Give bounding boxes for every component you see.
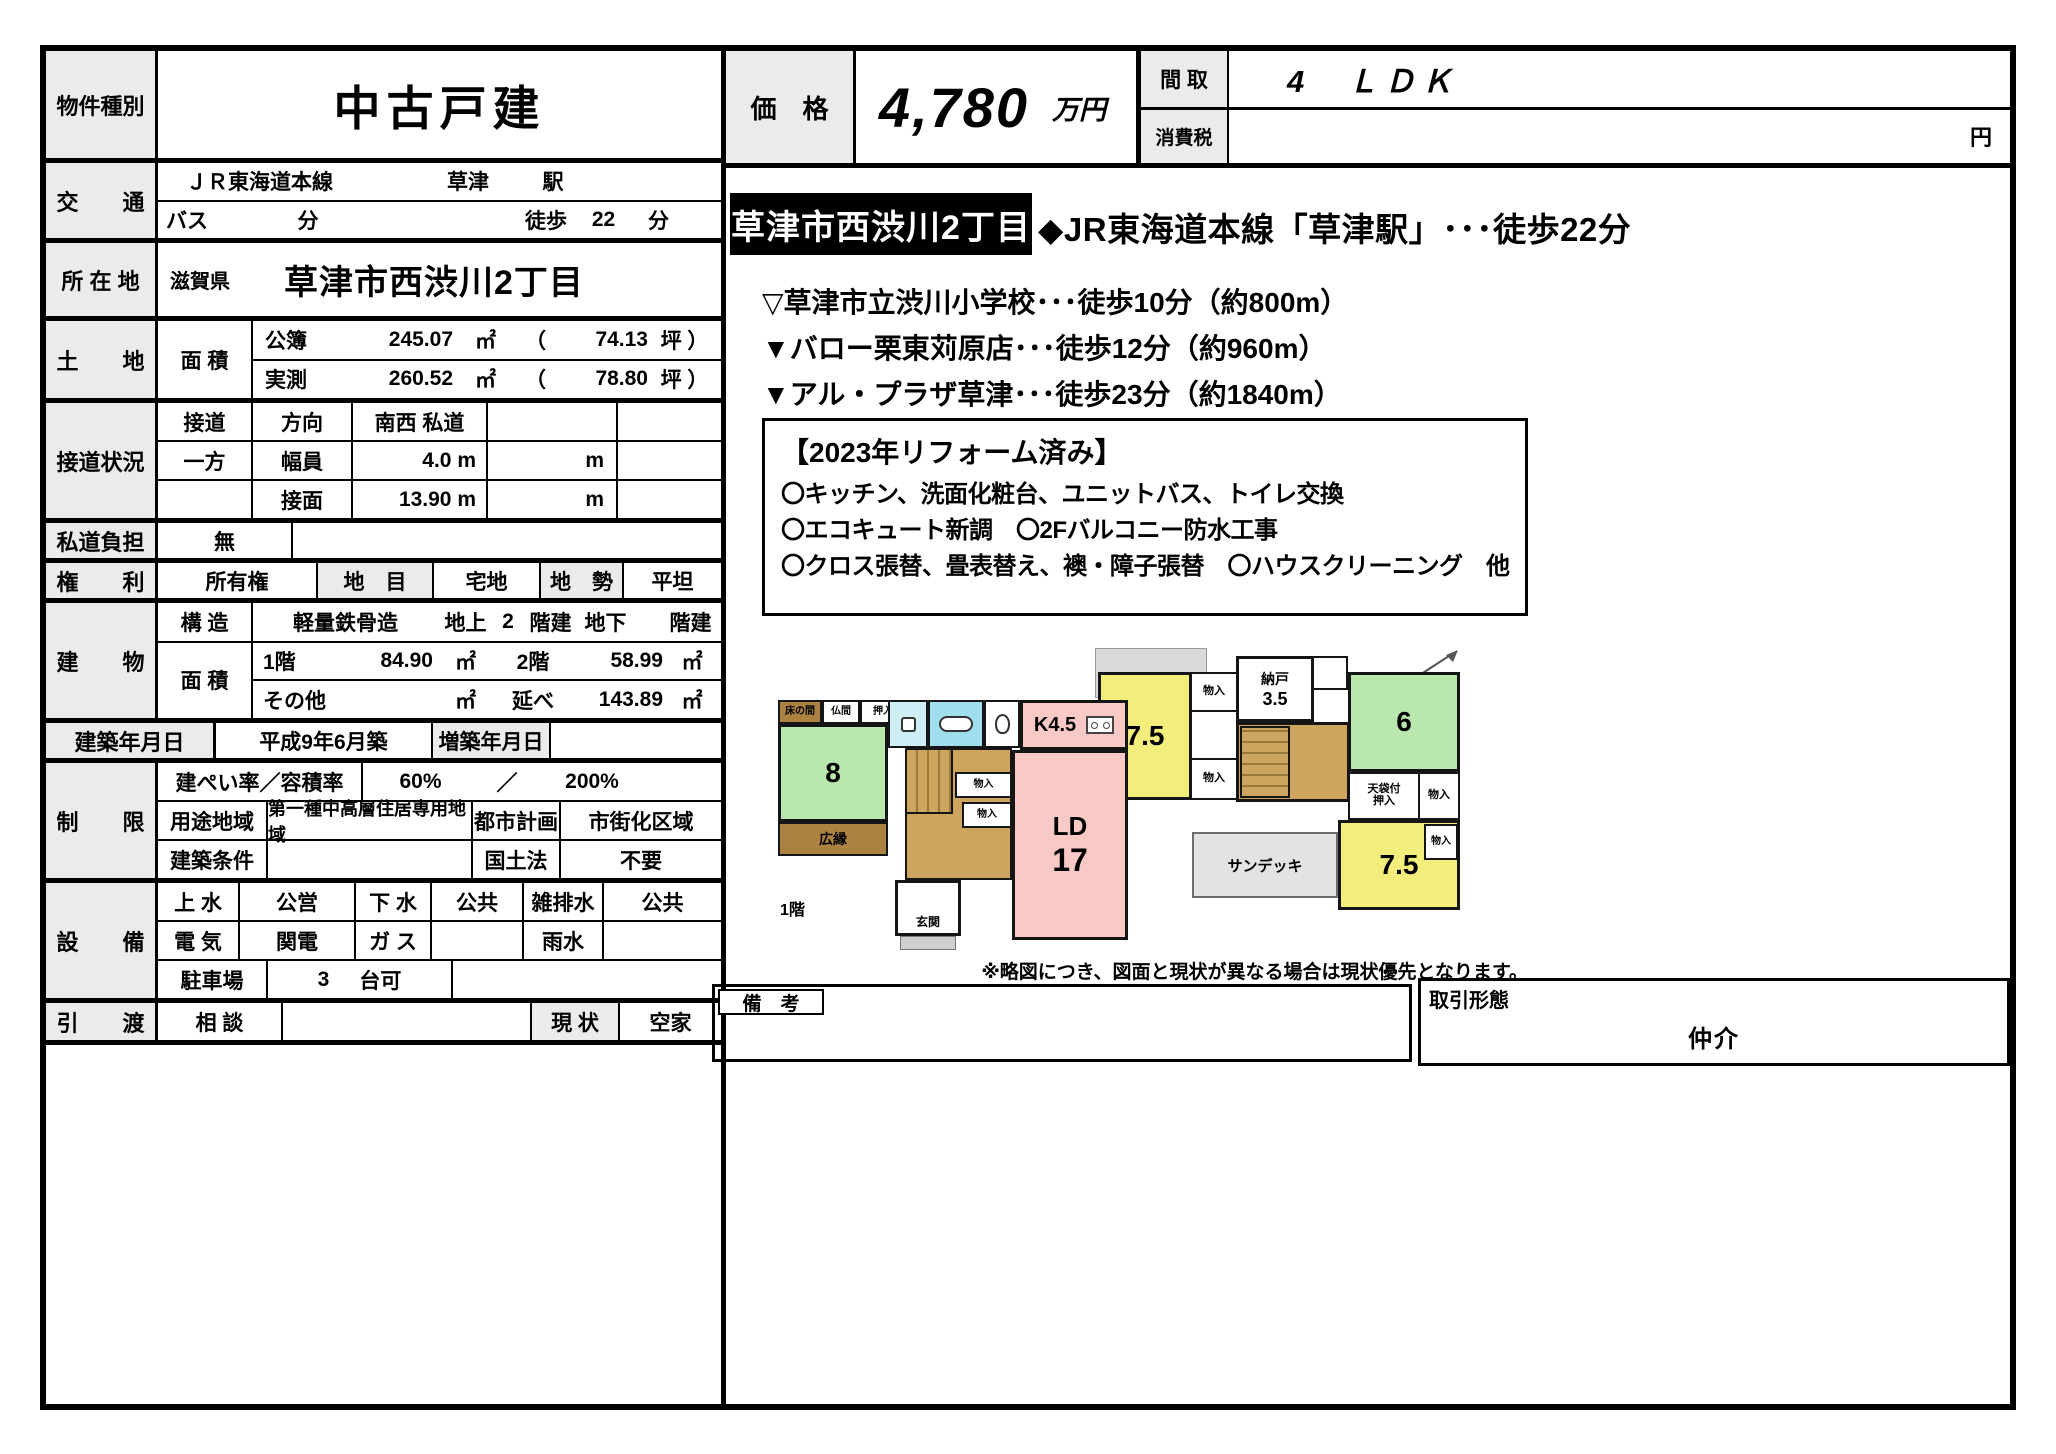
transaction-type-box: 取引形態 仲介 (1418, 978, 2010, 1066)
land-category-value: 宅地 (434, 563, 539, 598)
staircase-1f (905, 748, 953, 814)
toilet-1f (984, 700, 1020, 748)
flyer-page: 物件種別 中古戸建 交 通 ＪＲ東海道本線 草津 駅 バス 分 (0, 0, 2056, 1454)
closet-1f-a: 物入 (955, 772, 1012, 798)
spacer (578, 163, 721, 200)
tenbukuro-line-2: 押入 (1373, 796, 1395, 808)
spacer (686, 202, 721, 239)
parking-value-cell: 3 台可 (268, 961, 453, 998)
address-badge: 草津市西渋川2丁目 (730, 193, 1032, 255)
land-measured-row: 実測 260.52 ㎡ （ 78.80 坪 ） (253, 359, 721, 399)
walk-value: 22 (576, 202, 631, 239)
direction-value-2 (488, 403, 618, 440)
property-type-label: 物件種別 (46, 51, 158, 158)
structure-label: 構 造 (158, 603, 253, 641)
measured-value: 260.52 (323, 361, 453, 399)
bus-unit: 分 (288, 202, 328, 239)
direction-value: 南西 私道 (353, 403, 488, 440)
price-value-cell: 4,780 万円 (856, 51, 1141, 163)
row-land: 土 地 面 積 公簿 245.07 ㎡ （ 74.13 坪 ） 実測 260.5… (46, 321, 721, 403)
parking-unit: 台可 (359, 965, 401, 995)
land-label: 土 地 (46, 321, 158, 398)
parking-row: 駐車場 3 台可 (158, 959, 721, 998)
reform-title: 【2023年リフォーム済み】 (781, 431, 1509, 471)
drain-value: 公共 (604, 883, 721, 920)
room-2f-6: 6 (1348, 672, 1460, 772)
width-unit-2: m (488, 442, 618, 479)
registered-label: 公簿 (253, 321, 323, 359)
rail-line: ＪＲ東海道本線 (158, 163, 408, 200)
tax-label: 消費税 (1141, 110, 1229, 163)
condition-value (268, 841, 473, 878)
road-label: 接道状況 (46, 403, 158, 518)
spacer (283, 1003, 530, 1040)
other-label: その他 (253, 681, 328, 718)
prefecture: 滋賀県 (158, 243, 258, 316)
washbasin-icon (901, 717, 916, 732)
row-access: 交 通 ＪＲ東海道本線 草津 駅 バス 分 徒歩 22 (46, 163, 721, 243)
building-structure-row: 構 造 軽量鉄骨造 地上 2 階建 地下 階建 (158, 603, 721, 641)
gas-value (432, 922, 524, 959)
property-type-value: 中古戸建 (158, 51, 721, 158)
kokudo-label: 国土法 (473, 841, 561, 878)
total-value: 143.89 (568, 681, 663, 718)
electric-row: 電 気 関電 ガ ス 雨水 (158, 920, 721, 959)
ld-size-label: 17 (1052, 842, 1088, 879)
balcony-cell-2f (1312, 656, 1348, 690)
madori-label: 間 取 (1141, 51, 1229, 107)
price-label: 価 格 (726, 51, 856, 163)
direction-value-3 (618, 403, 721, 440)
f2-label: 2階 (498, 643, 568, 680)
spec-table: 物件種別 中古戸建 交 通 ＪＲ東海道本線 草津 駅 バス 分 (46, 51, 726, 1404)
sewer-label: 下 水 (356, 883, 432, 920)
extension-date-label: 増築年月日 (431, 723, 551, 758)
above-unit: 階建 (523, 603, 578, 641)
reform-box: 【2023年リフォーム済み】 〇キッチン、洗面化粧台、ユニットバス、トイレ交換 … (762, 418, 1528, 616)
toilet-icon (995, 714, 1010, 734)
kokudo-value: 不要 (561, 841, 721, 878)
status-value: 空家 (620, 1003, 721, 1040)
utilities-label: 設 備 (46, 883, 158, 998)
width-value-3 (618, 442, 721, 479)
condition-label: 建築条件 (158, 841, 268, 878)
storage-label: 納戸 (1261, 669, 1289, 689)
poi-school: ▽草津市立渋川小学校･･･徒歩10分（約800m） (762, 281, 1348, 321)
closet-1f-b: 物入 (962, 802, 1012, 828)
measured-label: 実測 (253, 361, 323, 399)
volume-value: 200% (536, 763, 648, 800)
property-sheet: 物件種別 中古戸建 交 通 ＪＲ東海道本線 草津 駅 バス 分 (40, 45, 2016, 1410)
land-registered-row: 公簿 245.07 ㎡ （ 74.13 坪 ） (253, 321, 721, 359)
width-value: 4.0 m (353, 442, 488, 479)
closet-2f-b: 物入 (1190, 758, 1238, 800)
water-label: 上 水 (158, 883, 240, 920)
closet-2f-a: 物入 (1190, 672, 1238, 712)
room-size-label: 7.5 (1380, 849, 1419, 881)
floor-label-1f: 1階 (780, 896, 805, 920)
plan-disclaimer: ※略図につき、図面と現状が異なる場合は現状優先となります。 (686, 957, 1528, 984)
sun-deck: サンデッキ (1192, 832, 1338, 898)
blank-cell (293, 523, 721, 558)
building-area-label: 面 積 (158, 643, 253, 718)
handover-label: 引 渡 (46, 1003, 158, 1040)
bus-label: バス (158, 202, 226, 239)
transaction-type-value: 仲介 (1421, 1019, 2007, 1054)
road-contact-label: 接道 (158, 403, 253, 440)
gas-label: ガ ス (356, 922, 432, 959)
condition-row: 建築条件 国土法 不要 (158, 839, 721, 878)
width-label: 幅員 (253, 442, 353, 479)
limits-label: 制 限 (46, 763, 158, 878)
ld-label: LD (1053, 811, 1088, 842)
extension-date-value (551, 723, 721, 758)
row-utilities: 設 備 上 水 公営 下 水 公共 雑排水 公共 電 気 関電 ガ ス (46, 883, 721, 1003)
remarks-box: 備 考 (712, 984, 1412, 1062)
registered-unit: ㎡ (453, 321, 518, 359)
address: 草津市西渋川2丁目 (284, 243, 584, 316)
price-unit: 万円 (1052, 88, 1136, 127)
row-private-road: 私道負担 無 (46, 523, 721, 563)
porch-step (900, 936, 956, 950)
road-width-row: 一方 幅員 4.0 m m (158, 440, 721, 479)
row-road: 接道状況 接道 方向 南西 私道 一方 幅員 4.0 m m (46, 403, 721, 523)
price-header: 価 格 4,780 万円 間 取 4 ＬＤＫ 消費税 円 (726, 51, 2010, 168)
location-label: 所 在 地 (46, 243, 158, 316)
parking-label: 駐車場 (158, 961, 268, 998)
rain-value (604, 922, 721, 959)
tax-unit: 円 (1229, 110, 2010, 163)
poi-supermarket-1: ▼バロー栗東苅原店･･･徒歩12分（約960m） (762, 327, 1326, 367)
measured-unit: ㎡ (453, 361, 518, 399)
parking-value: 3 (318, 968, 330, 992)
madori-row: 間 取 4 ＬＤＫ (1141, 51, 2010, 110)
kitchen-label: K4.5 (1034, 714, 1076, 737)
walk-unit: 分 (631, 202, 686, 239)
tenbukuro-closet-2f: 天袋付 押入 (1348, 772, 1420, 820)
frontage-value: 13.90 m (353, 481, 488, 518)
living-dining-1f: LD 17 (1012, 750, 1128, 940)
measured-tsubo: 78.80 (553, 361, 648, 399)
zoning-value: 第一種中高層住居専用地域 (268, 802, 473, 839)
electric-label: 電 気 (158, 922, 240, 959)
bathtub-icon (939, 716, 973, 732)
room-size-label: 6 (1396, 706, 1412, 738)
row-rights: 権 利 所有権 地 目 宅地 地 勢 平坦 (46, 563, 721, 603)
genkan-label: 玄関 (916, 913, 940, 930)
row-property-type: 物件種別 中古戸建 (46, 51, 721, 163)
drain-label: 雑排水 (524, 883, 604, 920)
registered-paren: （ (518, 321, 553, 359)
remarks-label: 備 考 (718, 989, 824, 1015)
hiroen-veranda: 広縁 (778, 822, 888, 856)
building-label: 建 物 (46, 603, 158, 718)
road-frontage-row: 接面 13.90 m m (158, 479, 721, 518)
terrain-label: 地 勢 (539, 563, 624, 598)
rain-label: 雨水 (524, 922, 604, 959)
direction-label: 方向 (253, 403, 353, 440)
reform-line-3: 〇クロス張替、畳表替え、襖・障子張替 〇ハウスクリーニング 他 (781, 549, 1509, 585)
frontage-value-3 (618, 481, 721, 518)
cityplan-label: 都市計画 (473, 802, 561, 839)
rights-label: 権 利 (46, 563, 158, 598)
access-rail-row: ＪＲ東海道本線 草津 駅 (158, 163, 721, 200)
closet-2f-c: 物入 (1418, 772, 1460, 820)
cityplan-value: 市街化区域 (561, 802, 721, 839)
zoning-label: 用途地域 (158, 802, 268, 839)
below-unit: 階建 (663, 603, 718, 641)
staircase-2f (1240, 726, 1290, 798)
built-date-value: 平成9年6月築 (216, 723, 431, 758)
f2-value: 58.99 (568, 643, 663, 680)
station-suffix: 駅 (528, 163, 578, 200)
washroom-1f (888, 700, 928, 748)
spacer (648, 763, 721, 800)
station-name: 草津 (408, 163, 528, 200)
reform-line-1: 〇キッチン、洗面化粧台、ユニットバス、トイレ交換 (781, 477, 1509, 513)
closet-2f-d: 物入 (1424, 824, 1458, 860)
blank-cell (453, 961, 721, 998)
access-label: 交 通 (46, 163, 158, 238)
tax-row: 消費税 円 (1141, 110, 2010, 163)
access-bus-row: バス 分 徒歩 22 分 (158, 200, 721, 239)
f1-label: 1階 (253, 643, 328, 680)
room-size-label: 7.5 (1126, 720, 1165, 752)
sewer-value: 公共 (432, 883, 524, 920)
private-road-label: 私道負担 (46, 523, 158, 558)
storage-room-2f: 納戸 3.5 (1236, 656, 1314, 722)
kitchen-1f: K4.5 (1020, 700, 1128, 750)
f1-unit: ㎡ (433, 643, 498, 680)
handover-value: 相 談 (158, 1003, 283, 1040)
above-label: 地上 (438, 603, 493, 641)
below-label: 地下 (578, 603, 633, 641)
storage-size: 3.5 (1262, 689, 1287, 710)
row-handover: 引 渡 相 談 現 状 空家 (46, 1003, 721, 1045)
bathroom-1f (928, 700, 984, 748)
spacer (226, 202, 288, 239)
other-unit: ㎡ (433, 681, 498, 718)
land-category-label: 地 目 (316, 563, 434, 598)
spacer (328, 202, 516, 239)
stove-icon (1086, 716, 1114, 734)
building-total-row: その他 ㎡ 延べ 143.89 ㎡ (253, 679, 721, 718)
water-value: 公営 (240, 883, 356, 920)
row-building: 建 物 構 造 軽量鉄骨造 地上 2 階建 地下 階建 面 積 (46, 603, 721, 723)
rights-value: 所有権 (158, 563, 316, 598)
tokonoma-alcove: 床の間 (778, 700, 822, 724)
private-road-value: 無 (158, 523, 293, 558)
structure-value: 軽量鉄骨造 (253, 603, 438, 641)
row-limits: 制 限 建ぺい率／容積率 60% ／ 200% 用途地域 第一種中高層住居専用地… (46, 763, 721, 883)
other-value (328, 681, 433, 718)
f2-unit: ㎡ (663, 643, 721, 680)
status-label: 現 状 (530, 1003, 620, 1040)
butsuma-alcove: 仏間 (822, 700, 860, 724)
frontage-unit-2: m (488, 481, 618, 518)
room-1f-8: 8 (778, 724, 888, 822)
built-date-label: 建築年月日 (46, 723, 216, 758)
total-unit: ㎡ (663, 681, 721, 718)
madori-value: 4 ＬＤＫ (1229, 51, 2010, 107)
station-distance-line: ◆JR東海道本線「草津駅」･･･徒歩22分 (1038, 203, 1631, 251)
transaction-type-label: 取引形態 (1421, 981, 2007, 1013)
f1-value: 84.90 (328, 643, 433, 680)
blank-cell (158, 481, 253, 518)
land-area-label: 面 積 (158, 321, 253, 398)
room-size-label: 8 (825, 757, 841, 789)
genkan-entrance: 玄関 (895, 880, 961, 936)
terrain-value: 平坦 (624, 563, 721, 598)
zoning-row: 用途地域 第一種中高層住居専用地域 都市計画 市街化区域 (158, 800, 721, 839)
row-built-date: 建築年月日 平成9年6月築 増築年月日 (46, 723, 721, 763)
road-direction-row: 接道 方向 南西 私道 (158, 403, 721, 440)
spacer (633, 603, 663, 641)
price-value: 4,780 (856, 75, 1052, 140)
frontage-label: 接面 (253, 481, 353, 518)
registered-value: 245.07 (323, 321, 453, 359)
registered-tsubo: 74.13 (553, 321, 648, 359)
reform-line-2: 〇エコキュート新調 〇2Fバルコニー防水工事 (781, 513, 1509, 549)
water-row: 上 水 公営 下 水 公共 雑排水 公共 (158, 883, 721, 920)
measured-paren: （ (518, 361, 553, 399)
building-area-rows: 面 積 1階 84.90 ㎡ 2階 58.99 ㎡ その他 (158, 641, 721, 718)
walk-label: 徒歩 (516, 202, 576, 239)
building-f1f2-row: 1階 84.90 ㎡ 2階 58.99 ㎡ (253, 643, 721, 680)
row-location: 所 在 地 滋賀県 草津市西渋川2丁目 (46, 243, 721, 321)
oneside-label: 一方 (158, 442, 253, 479)
total-label: 延べ (498, 681, 568, 718)
registered-tsubo-unit: 坪 ） (648, 321, 721, 359)
coverage-slash: ／ (478, 763, 536, 800)
measured-tsubo-unit: 坪 ） (648, 361, 721, 399)
above-value: 2 (493, 603, 523, 641)
poi-supermarket-2: ▼アル・プラザ草津･･･徒歩23分（約1840m） (762, 373, 1342, 413)
electric-value: 関電 (240, 922, 356, 959)
